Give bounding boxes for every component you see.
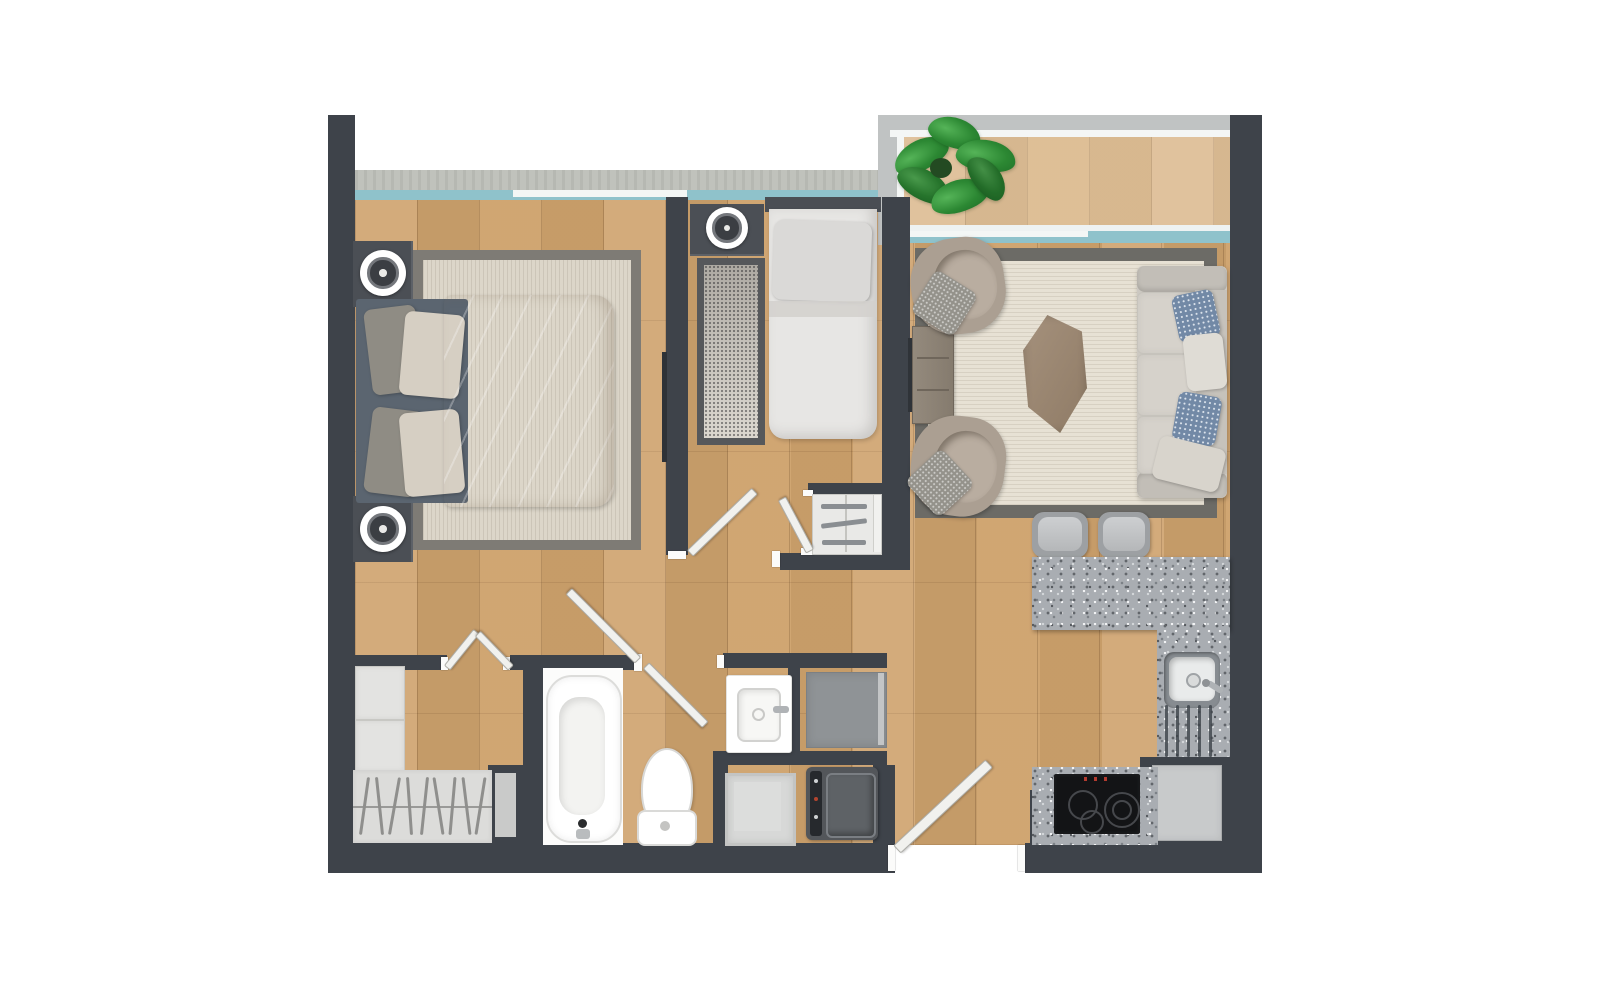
drainboard-groove: [1176, 705, 1179, 757]
wall-left: [328, 115, 355, 873]
wall-bedroom-divider: [666, 197, 688, 555]
storage-cabinet: [806, 672, 887, 748]
lamp-center: [379, 525, 387, 533]
single-bed: [765, 197, 881, 445]
faucet-handle: [1202, 679, 1210, 687]
armchair: [905, 411, 1010, 522]
ceiling-lamp-icon: [360, 506, 406, 552]
sofa-armrest: [1137, 266, 1227, 292]
cooktop-controls: [1094, 777, 1097, 781]
sofa: [1137, 266, 1227, 498]
console-shelf-line: [917, 389, 949, 391]
ceiling-lamp-icon: [360, 250, 406, 296]
kitchen-sink: [1164, 652, 1220, 708]
bar-stool-seat: [1038, 517, 1082, 551]
ceiling-lamp-icon: [706, 207, 748, 249]
door-jamb: [717, 655, 724, 668]
bedroom-window-frame: [513, 190, 687, 197]
duvet-fold: [769, 301, 877, 317]
washer-lid: [826, 773, 876, 838]
washer-knob: [814, 815, 818, 819]
bathtub-drain: [578, 819, 587, 828]
shower-tray: [725, 773, 796, 846]
wall-laundry-north: [723, 653, 887, 668]
wall-bottom-right: [1025, 843, 1262, 873]
dresser: [812, 494, 882, 555]
storage-cabinet-edge: [878, 673, 884, 745]
duvet: [444, 295, 614, 507]
plant-center: [930, 158, 952, 178]
second-bedroom-rug: [697, 258, 765, 445]
drainboard-groove: [1187, 705, 1190, 757]
sliding-door-track: [662, 352, 667, 462]
bar-stool: [1032, 512, 1088, 558]
washer-knob: [814, 797, 818, 801]
wall-laundry-mid: [713, 751, 887, 765]
washbasin-faucet: [773, 706, 789, 713]
drainboard-groove: [1209, 705, 1212, 757]
armchair: [905, 232, 1011, 340]
lamp-inner-ring: [712, 213, 741, 242]
wall-hall-south-bedroom2: [780, 553, 882, 570]
door-jamb: [668, 551, 686, 559]
cooktop-burner: [1080, 810, 1104, 834]
lamp-center: [724, 225, 731, 232]
washbasin-vanity: [726, 675, 792, 753]
dresser-handle: [822, 540, 866, 545]
lamp-inner-ring: [367, 513, 398, 544]
bar-stool: [1098, 512, 1150, 558]
wardrobe-shelf: [355, 666, 405, 720]
console-shelf-line: [917, 357, 949, 359]
lamp-inner-ring: [367, 257, 398, 288]
bathtub-basin: [559, 697, 605, 815]
hanging-rail-section: [353, 770, 492, 843]
cooktop-controls: [1084, 777, 1087, 781]
potted-plant: [878, 112, 1008, 227]
wall-bottom-left: [328, 843, 895, 873]
door-jamb: [772, 551, 780, 567]
dresser-handle: [821, 518, 867, 529]
washing-machine: [806, 767, 878, 840]
washbasin-drain: [752, 708, 765, 721]
dresser-right-panel: [873, 495, 881, 552]
bar-stool-seat: [1103, 517, 1145, 551]
drainboard-groove: [1165, 705, 1168, 757]
toilet: [635, 748, 695, 846]
wall-bathroom-west: [523, 663, 543, 845]
wall-right: [1230, 115, 1262, 873]
tv-soundbar: [908, 338, 912, 412]
lamp-center: [379, 269, 387, 277]
sink-drain: [1186, 673, 1201, 688]
sofa-pillow-white: [1182, 332, 1228, 392]
double-bed: [356, 293, 614, 509]
console-table: [912, 326, 954, 424]
bed-pillow: [772, 219, 873, 302]
cooktop-burner-inner: [1112, 800, 1132, 820]
wardrobe-shelf: [355, 720, 405, 772]
shower-tray-inner: [734, 782, 781, 831]
door-jamb: [1018, 845, 1025, 871]
dresser-handle: [821, 504, 867, 509]
cooktop: [1054, 774, 1140, 834]
washer-knob: [814, 779, 818, 783]
kitchen-counter-peninsula: [1032, 557, 1230, 630]
window-sill: [355, 170, 880, 191]
floor-plan: [0, 0, 1600, 1000]
bathtub: [546, 675, 622, 843]
bathtub-faucet: [576, 829, 590, 839]
cooktop-controls: [1104, 777, 1107, 781]
door-jamb: [888, 845, 895, 871]
duct-shaft-panel: [495, 773, 516, 837]
toilet-flush-button: [660, 821, 670, 831]
drainboard-groove: [1198, 705, 1201, 757]
dishwasher-panel: [1152, 765, 1222, 841]
